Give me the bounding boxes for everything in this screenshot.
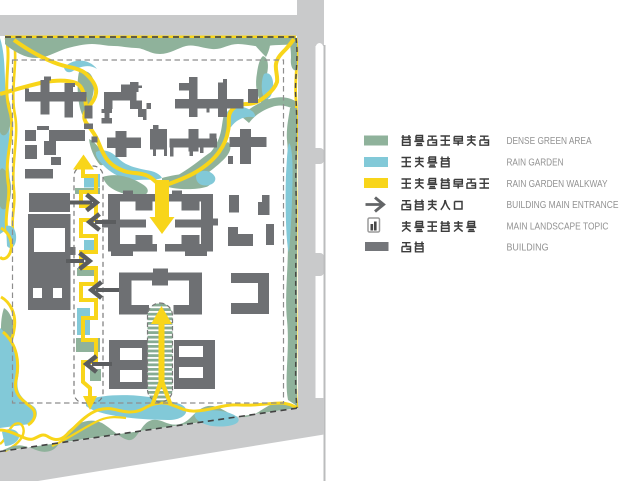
svg-text:MAIN LANDSCAPE TOPIC: MAIN LANDSCAPE TOPIC: [507, 222, 609, 233]
svg-text:RAIN GARDEN WALKWAY: RAIN GARDEN WALKWAY: [507, 179, 608, 190]
svg-text:BUILDING: BUILDING: [507, 243, 549, 254]
svg-text:BUILDING MAIN ENTRANCE: BUILDING MAIN ENTRANCE: [507, 200, 619, 211]
svg-text:RAIN GARDEN: RAIN GARDEN: [507, 158, 564, 169]
svg-text:DENSE GREEN AREA: DENSE GREEN AREA: [507, 136, 592, 147]
